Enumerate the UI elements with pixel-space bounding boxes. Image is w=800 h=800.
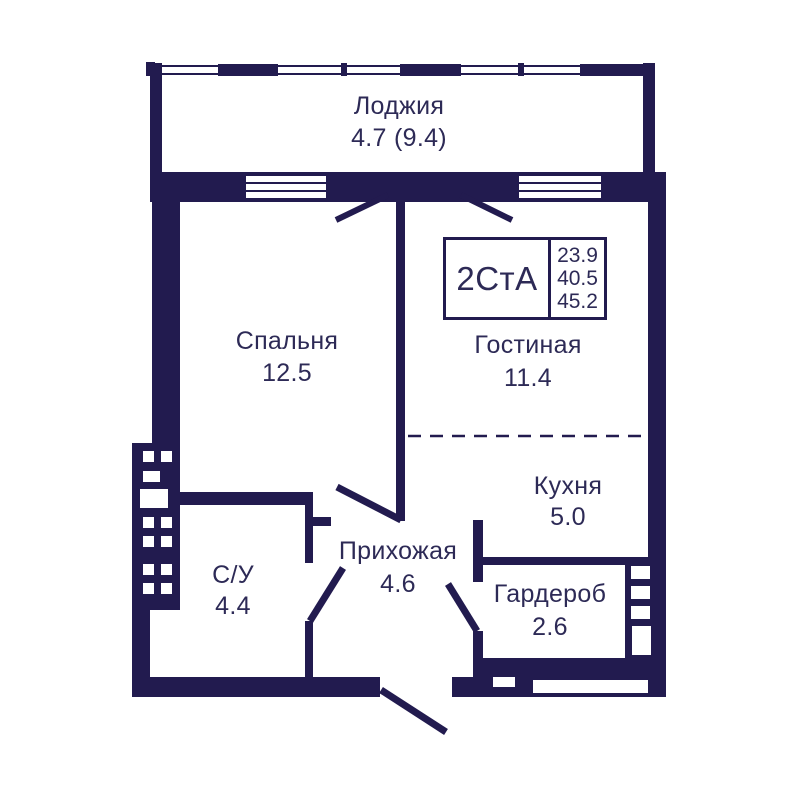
loggia-glazing bbox=[278, 65, 341, 75]
area-total: 45.2 bbox=[551, 290, 604, 313]
room-name: Лоджия bbox=[351, 90, 447, 122]
bedroom-window bbox=[244, 174, 328, 200]
info-box: 2СтА 23.9 40.5 45.2 bbox=[443, 237, 607, 320]
shaft-vent bbox=[631, 586, 650, 599]
room-name: Прихожая bbox=[339, 535, 457, 568]
room-name: Гардероб bbox=[494, 578, 606, 611]
room-name: Спальня bbox=[236, 325, 339, 357]
shaft-vent bbox=[631, 566, 650, 579]
wall-recess bbox=[493, 677, 515, 687]
room-area: 2.6 bbox=[494, 611, 606, 644]
room-label-living: Гостиная 11.4 bbox=[474, 329, 581, 395]
bedroom-door-leaf bbox=[337, 487, 401, 520]
loggia-left-wall bbox=[150, 63, 162, 172]
wardrobe-bottom-wall bbox=[473, 658, 640, 677]
left-outer-wall bbox=[152, 202, 180, 443]
wall-recess bbox=[533, 680, 649, 693]
area-main: 40.5 bbox=[551, 267, 604, 290]
loggia-glazing bbox=[347, 65, 400, 75]
shaft-vent bbox=[161, 451, 172, 462]
shaft-block bbox=[132, 443, 180, 610]
door-jamb bbox=[313, 517, 331, 526]
shaft-vent bbox=[143, 583, 154, 594]
room-area: 11.4 bbox=[474, 362, 581, 395]
wardrobe-left-wall bbox=[473, 520, 483, 582]
area-living: 23.9 bbox=[551, 244, 604, 267]
apartment-type-label: 2СтА bbox=[446, 240, 548, 317]
room-area: 4.4 bbox=[212, 591, 254, 622]
room-area: 5.0 bbox=[534, 502, 602, 533]
room-label-bedroom: Спальня 12.5 bbox=[236, 325, 339, 389]
loggia-glazing bbox=[154, 65, 218, 75]
room-area: 12.5 bbox=[236, 357, 339, 389]
room-name: Кухня bbox=[534, 471, 602, 502]
shaft-vent bbox=[143, 564, 154, 575]
room-area: 4.6 bbox=[339, 568, 457, 601]
shaft-vent bbox=[161, 536, 172, 547]
wall-segment bbox=[218, 64, 278, 76]
shaft-vent bbox=[143, 451, 154, 462]
shaft-vent bbox=[631, 606, 650, 619]
shaft-vent bbox=[140, 489, 168, 508]
bathroom-right-wall bbox=[305, 621, 313, 677]
shaft-vent bbox=[161, 564, 172, 575]
floor-plan: 2СтА 23.9 40.5 45.2 Лоджия 4.7 (9.4) Спа… bbox=[0, 0, 800, 800]
loggia-glazing bbox=[524, 65, 580, 75]
wall-segment bbox=[400, 64, 461, 76]
loggia-glazing bbox=[461, 65, 518, 75]
room-name: Гостиная bbox=[474, 329, 581, 362]
entry-door-leaf bbox=[381, 690, 446, 732]
shaft-vent bbox=[161, 583, 172, 594]
shaft-vent bbox=[161, 517, 172, 528]
room-label-hallway: Прихожая 4.6 bbox=[339, 535, 457, 601]
bottom-outer-wall bbox=[132, 677, 380, 697]
kitchen-wardrobe-wall bbox=[473, 557, 648, 565]
bedroom-living-divider-wall bbox=[396, 200, 405, 521]
room-label-loggia: Лоджия 4.7 (9.4) bbox=[351, 90, 447, 154]
apartment-areas: 23.9 40.5 45.2 bbox=[548, 240, 604, 317]
loggia-right-wall bbox=[643, 63, 655, 172]
shaft-vent bbox=[143, 471, 160, 482]
bathroom-right-wall bbox=[305, 505, 313, 563]
room-area: 4.7 (9.4) bbox=[351, 122, 447, 154]
room-label-kitchen: Кухня 5.0 bbox=[534, 471, 602, 533]
shaft-vent bbox=[143, 536, 154, 547]
room-name: С/У bbox=[212, 560, 254, 591]
shaft-vent bbox=[632, 626, 651, 655]
wall-segment bbox=[580, 64, 643, 76]
room-label-bathroom: С/У 4.4 bbox=[212, 560, 254, 622]
room-label-wardrobe: Гардероб 2.6 bbox=[494, 578, 606, 644]
living-window bbox=[517, 174, 603, 200]
bedroom-bathroom-wall bbox=[180, 492, 313, 505]
shaft-vent bbox=[143, 517, 154, 528]
